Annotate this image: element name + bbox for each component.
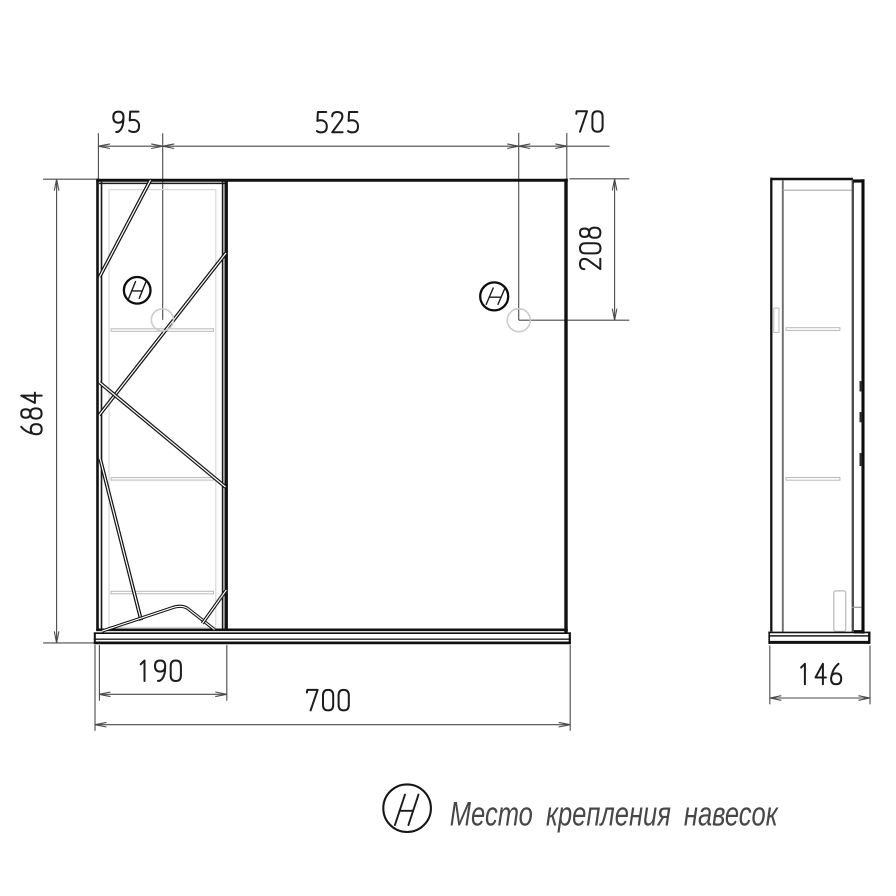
svg-text:Место крепления навесок: Место крепления навесок [450,796,779,834]
